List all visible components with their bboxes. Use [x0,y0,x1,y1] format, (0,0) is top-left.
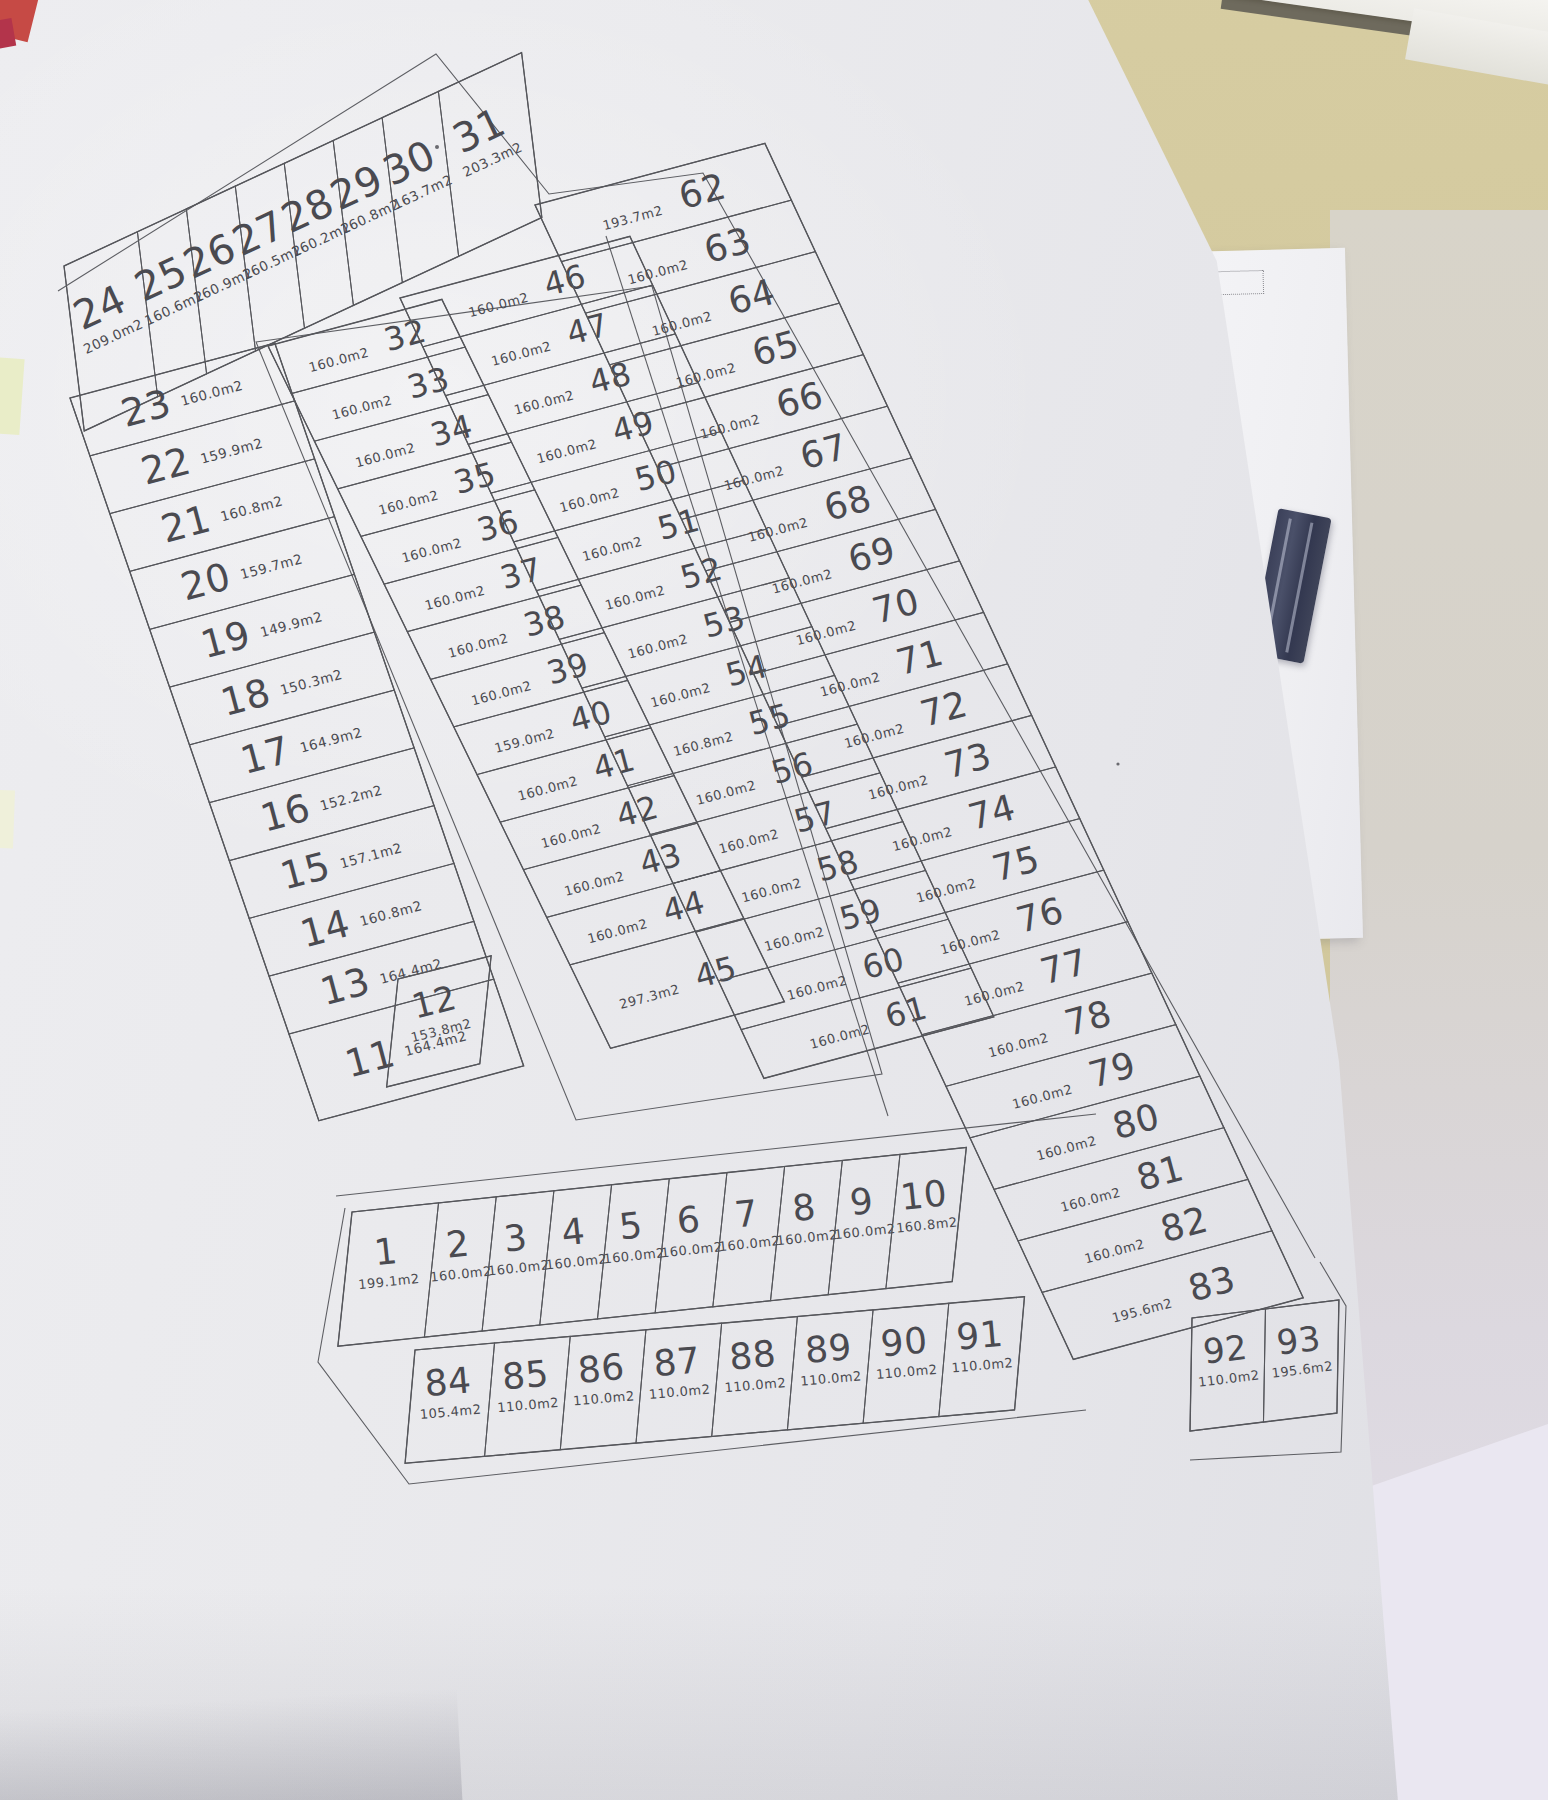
lot-19-label: 19 149.9m2 [196,593,327,668]
svg-text:110.0m2: 110.0m2 [572,1388,635,1408]
svg-text:22 159.9m2: 22 159.9m2 [136,419,267,494]
lot-45-label: 297.3m2 45 [613,948,741,1016]
svg-text:14 160.8m2: 14 160.8m2 [296,882,427,957]
svg-text:110.0m2: 110.0m2 [951,1355,1014,1375]
lot-44-label: 160.0m2 44 [581,883,709,951]
lot-15-label: 15 157.1m2 [276,824,407,899]
lot-10-label: 10160.8m2 [891,1171,958,1235]
lot-31-label: 31203.3m2 [440,96,525,180]
svg-text:19 149.9m2: 19 149.9m2 [196,593,327,668]
svg-text:21 160.8m2: 21 160.8m2 [156,477,287,552]
svg-text:110.0m2: 110.0m2 [648,1382,711,1402]
svg-text:160.0m2: 160.0m2 [833,1221,896,1242]
svg-text:1: 1 [372,1230,400,1273]
svg-text:84: 84 [423,1359,473,1404]
svg-text:160.0m2 61: 160.0m2 61 [803,988,931,1056]
lot-22-label: 22 159.9m2 [136,419,267,494]
svg-text:160.0m2 44: 160.0m2 44 [581,883,709,951]
svg-text:9: 9 [848,1180,876,1223]
svg-text:160.0m2: 160.0m2 [718,1233,781,1254]
lot-87-label: 87110.0m2 [644,1339,710,1402]
svg-text:88: 88 [728,1333,778,1378]
svg-text:7: 7 [733,1192,761,1235]
svg-text:160.0m2: 160.0m2 [430,1263,493,1284]
lot-20-label: 20 159.7m2 [176,535,307,610]
svg-text:92: 92 [1201,1327,1250,1372]
svg-text:193.7m2 62: 193.7m2 62 [596,165,731,238]
lot-90-label: 90110.0m2 [872,1319,938,1382]
svg-text:110.0m2: 110.0m2 [497,1395,560,1415]
photo-scene: 24209.0m225160.6m226160.9m227160.5m22816… [0,0,1548,1800]
svg-text:20 159.7m2: 20 159.7m2 [176,535,307,610]
strip-row-84-91: 84105.4m285110.0m286110.0m287110.0m28811… [405,1297,1024,1464]
svg-text:87: 87 [652,1339,702,1384]
strip-outline-row-84-91 [405,1297,1024,1464]
svg-text:110.0m2: 110.0m2 [724,1375,787,1395]
svg-text:85: 85 [500,1353,550,1398]
lot-strips: 24209.0m225160.6m226160.9m227160.5m22816… [57,53,1339,1464]
lot-14-label: 14 160.8m2 [296,882,427,957]
svg-text:4: 4 [559,1210,587,1253]
svg-text:86: 86 [576,1346,626,1391]
lot-18-label: 18 150.3m2 [216,650,347,725]
svg-text:17 164.9m2: 17 164.9m2 [236,708,367,783]
lot-17-label: 17 164.9m2 [236,708,367,783]
svg-text:91: 91 [955,1313,1005,1358]
svg-text:6: 6 [675,1198,703,1241]
paper-speck [435,145,439,149]
lot-62-label: 193.7m2 62 [596,165,731,238]
svg-text:160.0m2: 160.0m2 [487,1257,550,1278]
svg-text:160.0m2: 160.0m2 [545,1251,608,1272]
strip-fan-24-31: 24209.0m225160.6m226160.9m227160.5m22816… [57,53,542,434]
paper-speck [1116,762,1119,765]
strip-row-92-93: 92110.0m293195.6m2 [1190,1300,1339,1431]
lot-93-label: 93195.6m2 [1266,1317,1334,1381]
svg-text:93: 93 [1274,1318,1323,1363]
lot-62 [535,143,791,261]
svg-text:16 152.2m2: 16 152.2m2 [256,766,387,841]
plan-svg: 24209.0m225160.6m226160.9m227160.5m22816… [0,0,1548,1800]
svg-text:160.0m2: 160.0m2 [660,1239,723,1260]
svg-text:105.4m2: 105.4m2 [419,1402,482,1422]
lot-23-label: 23 160.0m2 [117,361,248,436]
svg-text:23 160.0m2: 23 160.0m2 [117,361,248,436]
lot-89-label: 89110.0m2 [796,1325,862,1388]
lot-84-label: 84105.4m2 [415,1359,481,1422]
svg-text:89: 89 [803,1326,853,1371]
svg-text:199.1m2: 199.1m2 [358,1271,421,1292]
svg-text:160.0m2 82: 160.0m2 82 [1077,1198,1212,1271]
lot-16-label: 16 152.2m2 [256,766,387,841]
svg-text:15 157.1m2: 15 157.1m2 [276,824,407,899]
svg-text:10: 10 [898,1172,949,1218]
lot-82-label: 160.0m2 82 [1077,1198,1212,1271]
svg-text:160.0m2: 160.0m2 [776,1227,839,1248]
lot-92-label: 92110.0m2 [1192,1326,1260,1390]
lot-83 [1042,1231,1303,1360]
svg-text:8: 8 [790,1186,818,1229]
lot-85-label: 85110.0m2 [493,1352,559,1415]
svg-text:3: 3 [502,1216,530,1259]
svg-text:5: 5 [617,1204,645,1247]
lot-88-label: 88110.0m2 [720,1332,786,1395]
svg-text:110.0m2: 110.0m2 [875,1362,938,1382]
bottom-road-upper-edge [336,1114,1096,1196]
svg-text:90: 90 [879,1319,929,1364]
lot-63 [561,200,815,313]
svg-text:297.3m2 45: 297.3m2 45 [613,948,741,1016]
lot-21-label: 21 160.8m2 [156,477,287,552]
svg-text:160.0m2: 160.0m2 [603,1245,666,1266]
lot-61-label: 160.0m2 61 [803,988,931,1056]
lot-86-label: 86110.0m2 [569,1345,635,1408]
lot-1-label: 1199.1m2 [353,1228,420,1292]
svg-text:110.0m2: 110.0m2 [800,1368,863,1388]
lot-91-label: 91110.0m2 [947,1312,1013,1375]
svg-text:2: 2 [444,1222,472,1265]
svg-text:18 150.3m2: 18 150.3m2 [216,650,347,725]
